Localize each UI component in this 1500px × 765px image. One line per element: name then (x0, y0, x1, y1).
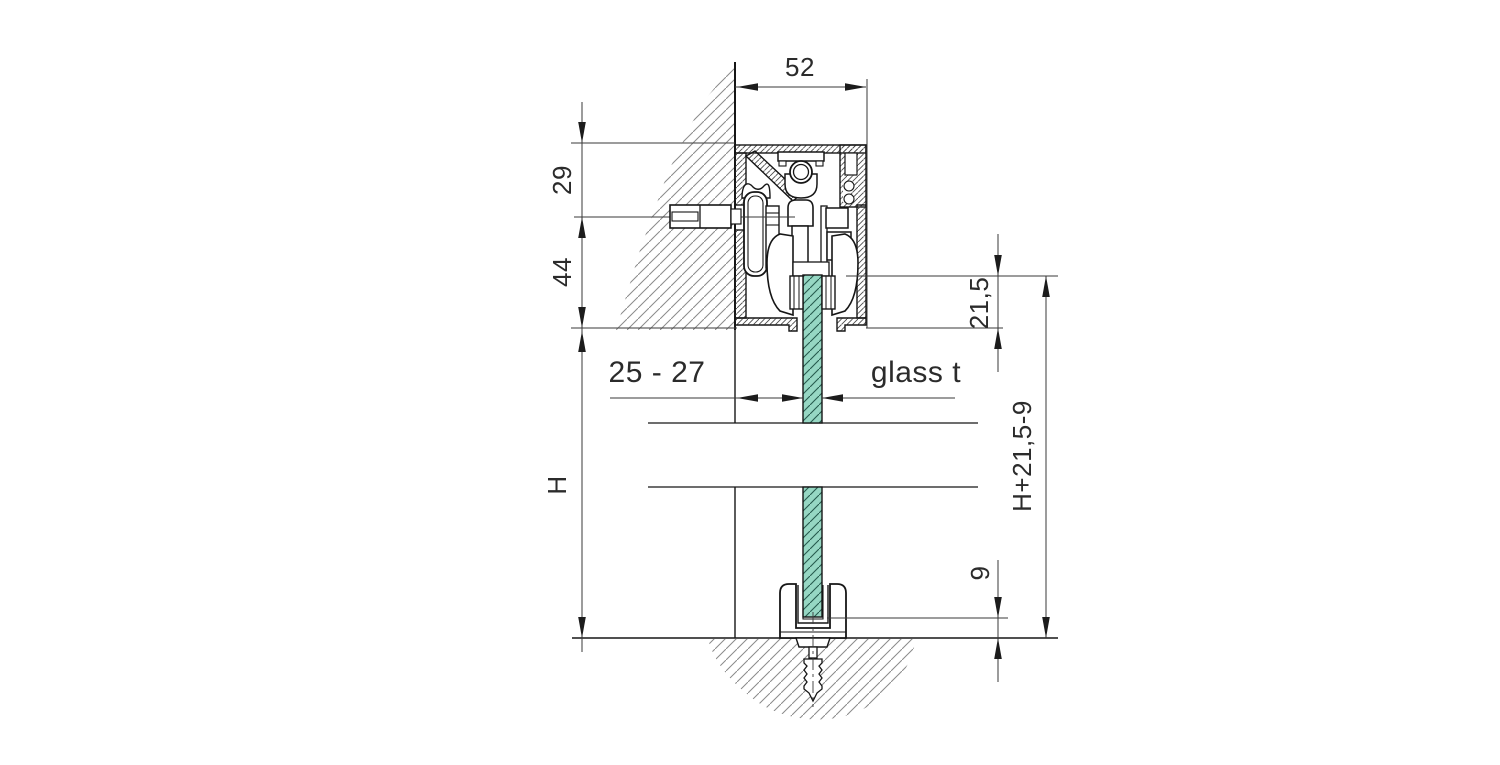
dimension-labels: 52 25 - 27 glass t 29 44 H 21,5 H+21,5-9… (542, 52, 1037, 580)
rail-bar (778, 152, 824, 161)
wall-section (616, 62, 735, 330)
glass-panel-upper (803, 275, 822, 423)
hanger-bolt-head (788, 200, 813, 226)
dim-overall-height-label: H+21,5-9 (1007, 400, 1037, 512)
dim-wall-to-glass-label: 25 - 27 (609, 356, 706, 389)
dim-top-engagement-label: 21,5 (964, 277, 994, 330)
technical-drawing-canvas: 52 25 - 27 glass t 29 44 H 21,5 H+21,5-9… (0, 0, 1500, 765)
dim-track-width-label: 52 (785, 52, 815, 82)
dim-44-label: 44 (547, 257, 577, 287)
dim-door-height-label: H (542, 475, 572, 494)
dim-glass-thickness-label: glass t (871, 356, 961, 389)
break-lines (648, 423, 978, 487)
dim-floor-engagement-label: 9 (965, 566, 995, 581)
glass-panel-lower (803, 487, 822, 617)
section-drawing: 52 25 - 27 glass t 29 44 H 21,5 H+21,5-9… (0, 0, 1500, 765)
dim-29-label: 29 (547, 165, 577, 195)
